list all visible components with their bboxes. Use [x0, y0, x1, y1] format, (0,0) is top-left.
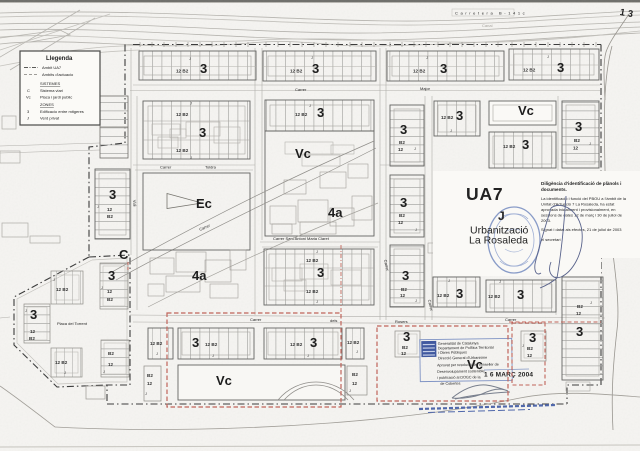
svg-text:12 B2: 12 B2: [176, 69, 189, 74]
svg-text:12 B2: 12 B2: [55, 360, 68, 365]
svg-text:J: J: [498, 209, 505, 223]
svg-text:12 B2: 12 B2: [306, 258, 319, 263]
svg-text:J: J: [190, 101, 192, 106]
svg-text:J: J: [189, 56, 191, 61]
svg-text:B2: B2: [147, 373, 153, 378]
svg-text:B2: B2: [399, 213, 405, 218]
svg-text:i publicació al DOGC de la: i publicació al DOGC de la: [437, 375, 481, 380]
svg-text:B2: B2: [402, 345, 408, 350]
svg-text:12 B2: 12 B2: [413, 69, 426, 74]
svg-text:12: 12: [147, 381, 153, 386]
svg-text:12 B2: 12 B2: [347, 340, 360, 345]
svg-text:3: 3: [310, 335, 317, 350]
svg-text:J: J: [415, 298, 417, 303]
svg-text:3: 3: [456, 108, 463, 123]
svg-text:Vc: Vc: [518, 103, 534, 118]
svg-text:aprovada inicialment i prov: aprovada inicialment i provisionalment, …: [541, 207, 615, 212]
svg-text:Carrer: Carrer: [250, 317, 262, 322]
svg-text:La Rosaleda: La Rosaleda: [469, 235, 528, 247]
svg-text:SISTEMES: SISTEMES: [40, 81, 61, 86]
svg-text:3: 3: [400, 122, 407, 137]
svg-text:Unitat d’Actuació 7 La Ros: Unitat d’Actuació 7 La Rosaleda, ha esta…: [541, 202, 615, 207]
svg-text:Rosers: Rosers: [395, 319, 408, 324]
svg-text:Vial: Vial: [132, 200, 138, 207]
svg-text:12 B2: 12 B2: [56, 287, 69, 292]
svg-text:12: 12: [398, 147, 404, 152]
svg-text:J: J: [145, 391, 147, 396]
svg-text:12 B2: 12 B2: [523, 68, 536, 73]
svg-text:Placa del Torrent: Placa del Torrent: [57, 321, 88, 326]
svg-text:Ambits d'actuacio: Ambits d'actuacio: [42, 72, 74, 77]
svg-text:documents.: documents.: [541, 187, 567, 192]
svg-text:de Cobertes: de Cobertes: [440, 382, 460, 386]
svg-text:J: J: [499, 279, 501, 284]
svg-text:J: J: [307, 353, 309, 358]
svg-text:B2: B2: [527, 346, 533, 351]
svg-text:12 B2: 12 B2: [306, 289, 319, 294]
svg-text:Carrer Sant Antoni Maria: Carrer Sant Antoni Maria Claret: [273, 236, 330, 241]
svg-text:3: 3: [529, 330, 536, 345]
svg-text:3: 3: [192, 335, 199, 350]
svg-text:B2: B2: [574, 138, 580, 143]
svg-text:12 B2: 12 B2: [503, 144, 516, 149]
svg-text:2003.: 2003.: [541, 218, 551, 223]
svg-text:Canal: Canal: [482, 23, 493, 28]
svg-text:12 B2: 12 B2: [290, 69, 303, 74]
svg-text:La identificació i funció del: La identificació i funció del PBOU a l’à…: [541, 196, 627, 201]
svg-text:3: 3: [575, 119, 582, 134]
svg-text:12 B2: 12 B2: [441, 115, 454, 120]
svg-text:12 B2: 12 B2: [290, 342, 303, 347]
svg-text:12 B2: 12 B2: [176, 112, 189, 117]
svg-text:Vc: Vc: [26, 95, 31, 100]
svg-text:C: C: [27, 88, 30, 93]
svg-text:J: J: [589, 141, 591, 146]
svg-text:12: 12: [352, 381, 358, 386]
svg-text:3: 3: [557, 60, 564, 75]
svg-text:3: 3: [402, 268, 409, 283]
svg-text:J: J: [212, 353, 214, 358]
svg-text:Vc: Vc: [295, 146, 311, 161]
svg-text:Placa i jardi public: Placa i jardi public: [40, 95, 72, 100]
svg-text:J: J: [53, 277, 55, 282]
svg-text:3: 3: [456, 286, 463, 301]
svg-text:J: J: [316, 249, 318, 254]
svg-text:12: 12: [107, 289, 113, 294]
svg-text:B2: B2: [352, 372, 358, 377]
svg-text:B2: B2: [577, 304, 583, 309]
svg-text:B2: B2: [107, 214, 113, 219]
svg-text:Llegenda: Llegenda: [46, 56, 73, 62]
svg-text:B2: B2: [29, 336, 35, 341]
svg-text:J: J: [156, 351, 158, 356]
svg-text:J: J: [590, 300, 592, 305]
svg-text:12: 12: [527, 353, 533, 358]
svg-text:3: 3: [403, 329, 410, 344]
svg-text:J: J: [311, 55, 313, 60]
svg-text:3: 3: [312, 61, 319, 76]
svg-text:B2: B2: [107, 297, 113, 302]
svg-text:12: 12: [400, 293, 406, 298]
svg-text:J: J: [103, 369, 105, 374]
svg-text:3: 3: [30, 307, 37, 322]
svg-text:sessions de dates 12 de març i: sessions de dates 12 de març i 30 de jul…: [541, 213, 623, 218]
svg-text:ZONES: ZONES: [40, 102, 54, 107]
svg-text:12: 12: [573, 146, 579, 151]
svg-text:4a: 4a: [192, 268, 207, 283]
svg-text:J: J: [414, 146, 416, 151]
svg-text:12 B2: 12 B2: [205, 342, 218, 347]
svg-text:3: 3: [317, 105, 324, 120]
svg-text:Toldra: Toldra: [205, 165, 217, 170]
svg-text:J: J: [448, 278, 450, 283]
svg-text:J: J: [25, 308, 27, 313]
svg-text:Vc: Vc: [216, 373, 232, 388]
svg-text:12 B2: 12 B2: [488, 294, 501, 299]
svg-text:12 B2: 12 B2: [176, 148, 189, 153]
svg-text:12 B2: 12 B2: [295, 112, 308, 117]
svg-text:Carrer: Carrer: [295, 87, 307, 92]
svg-text:B2: B2: [399, 140, 405, 145]
svg-text:3: 3: [200, 61, 207, 76]
svg-text:J: J: [316, 299, 318, 304]
svg-text:el secretari: el secretari: [541, 237, 561, 242]
svg-text:Sistema viari: Sistema viari: [40, 88, 63, 93]
svg-text:3: 3: [108, 268, 115, 283]
svg-text:B2: B2: [108, 351, 114, 356]
svg-text:1 6 MARÇ 2004: 1 6 MARÇ 2004: [484, 372, 533, 379]
svg-text:Carrer: Carrer: [505, 317, 517, 322]
svg-text:3: 3: [199, 125, 206, 140]
svg-text:J: J: [190, 155, 192, 160]
svg-text:Carretera B-141c: Carretera B-141c: [455, 11, 527, 16]
svg-text:3: 3: [109, 187, 116, 202]
svg-text:UA7: UA7: [466, 184, 503, 204]
svg-text:12: 12: [401, 351, 407, 356]
svg-text:3: 3: [522, 137, 529, 152]
svg-text:Carrer: Carrer: [160, 165, 172, 170]
svg-text:Ec: Ec: [196, 196, 212, 211]
svg-text:B2: B2: [401, 287, 407, 292]
svg-text:Ambit UA7: Ambit UA7: [42, 65, 62, 70]
svg-text:12: 12: [576, 311, 582, 316]
svg-text:3: 3: [317, 265, 324, 280]
svg-text:12 B2: 12 B2: [150, 341, 163, 346]
svg-text:3: 3: [440, 61, 447, 76]
svg-text:dels: dels: [330, 318, 337, 323]
svg-text:J: J: [309, 103, 311, 108]
svg-text:J: J: [356, 349, 358, 354]
svg-text:12: 12: [107, 207, 113, 212]
svg-text:i Obres Públiques: i Obres Públiques: [438, 350, 467, 354]
svg-text:4a: 4a: [328, 205, 343, 220]
svg-text:Diligència d’identificació d: Diligència d’identificació de plànols i: [541, 181, 621, 186]
svg-text:J: J: [349, 388, 351, 393]
svg-text:J: J: [101, 285, 103, 290]
svg-text:J: J: [415, 227, 417, 232]
svg-text:Verd privat: Verd privat: [40, 116, 60, 121]
svg-text:3: 3: [576, 324, 583, 339]
svg-text:3: 3: [400, 195, 407, 210]
svg-text:12 B2: 12 B2: [437, 293, 450, 298]
svg-text:Edificacio entre mitgeres: Edificacio entre mitgeres: [40, 109, 84, 114]
svg-text:Major: Major: [420, 86, 431, 91]
svg-text:3: 3: [517, 287, 524, 302]
svg-text:J: J: [27, 116, 29, 121]
svg-text:J: J: [522, 343, 524, 348]
svg-text:J: J: [64, 370, 66, 375]
svg-text:J: J: [547, 54, 549, 59]
svg-text:12: 12: [30, 329, 36, 334]
svg-text:J: J: [450, 128, 452, 133]
svg-text:12: 12: [108, 362, 114, 367]
svg-text:Vc: Vc: [467, 357, 483, 372]
svg-text:J: J: [426, 55, 428, 60]
svg-text:J: J: [97, 204, 99, 209]
svg-text:12: 12: [398, 220, 404, 225]
svg-text:C: C: [119, 247, 129, 262]
